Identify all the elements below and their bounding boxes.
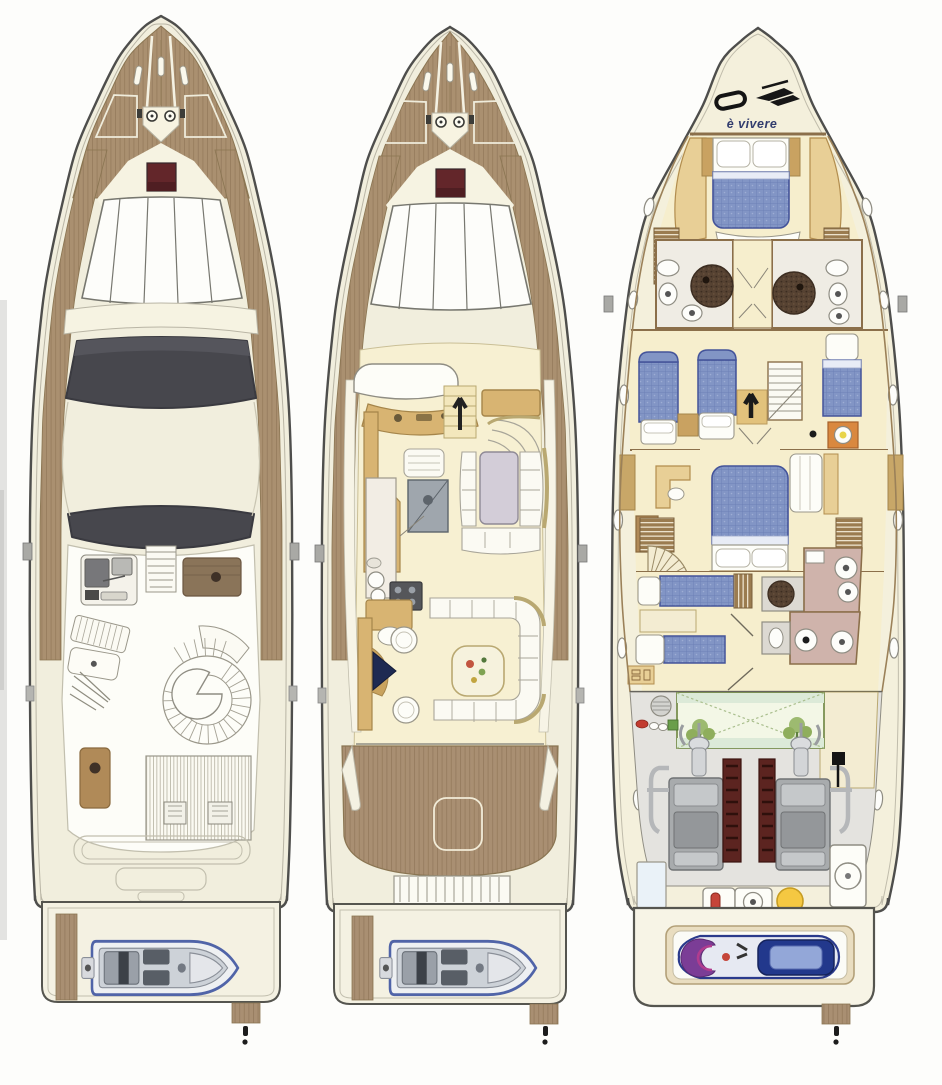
svg-text:è vivere: è vivere xyxy=(727,117,778,131)
